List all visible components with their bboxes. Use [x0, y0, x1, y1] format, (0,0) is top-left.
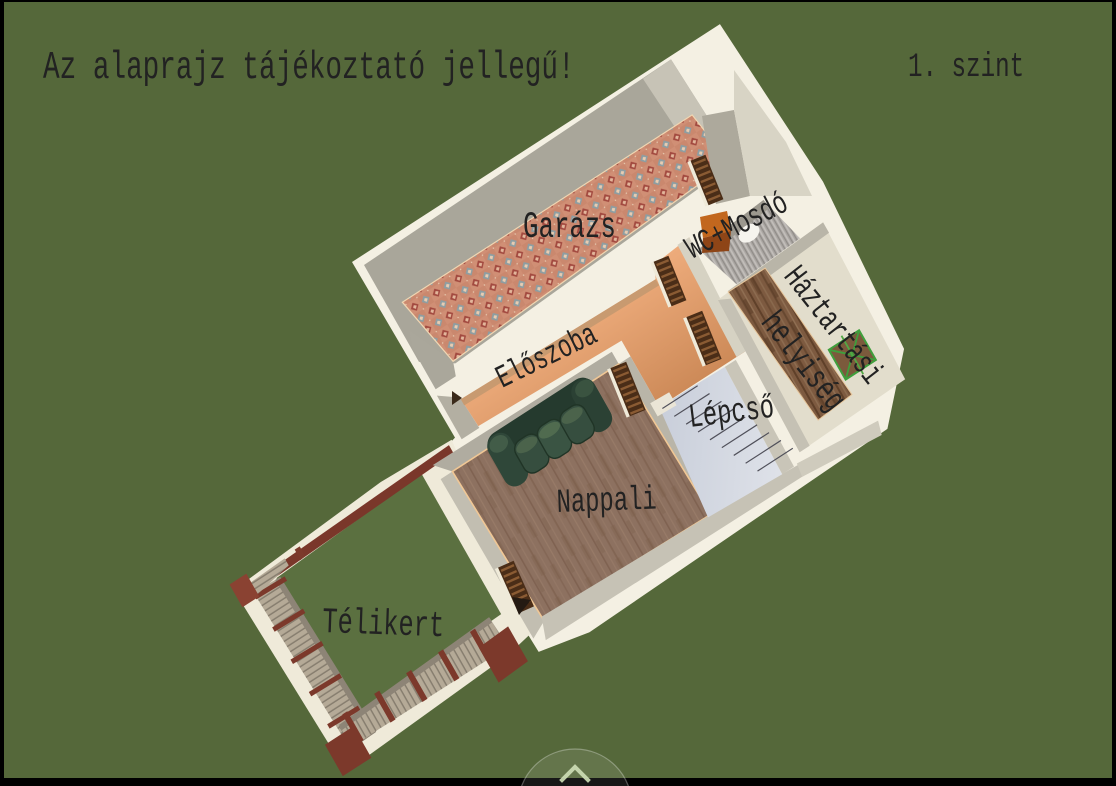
svg-text:1. szint: 1. szint — [908, 47, 1024, 86]
svg-text:Garázs: Garázs — [523, 207, 616, 249]
svg-text:Nappali: Nappali — [556, 481, 657, 523]
svg-text:Télikert: Télikert — [322, 603, 445, 648]
svg-text:Az alaprajz tájékoztató jelleg: Az alaprajz tájékoztató jellegű! — [43, 47, 575, 91]
